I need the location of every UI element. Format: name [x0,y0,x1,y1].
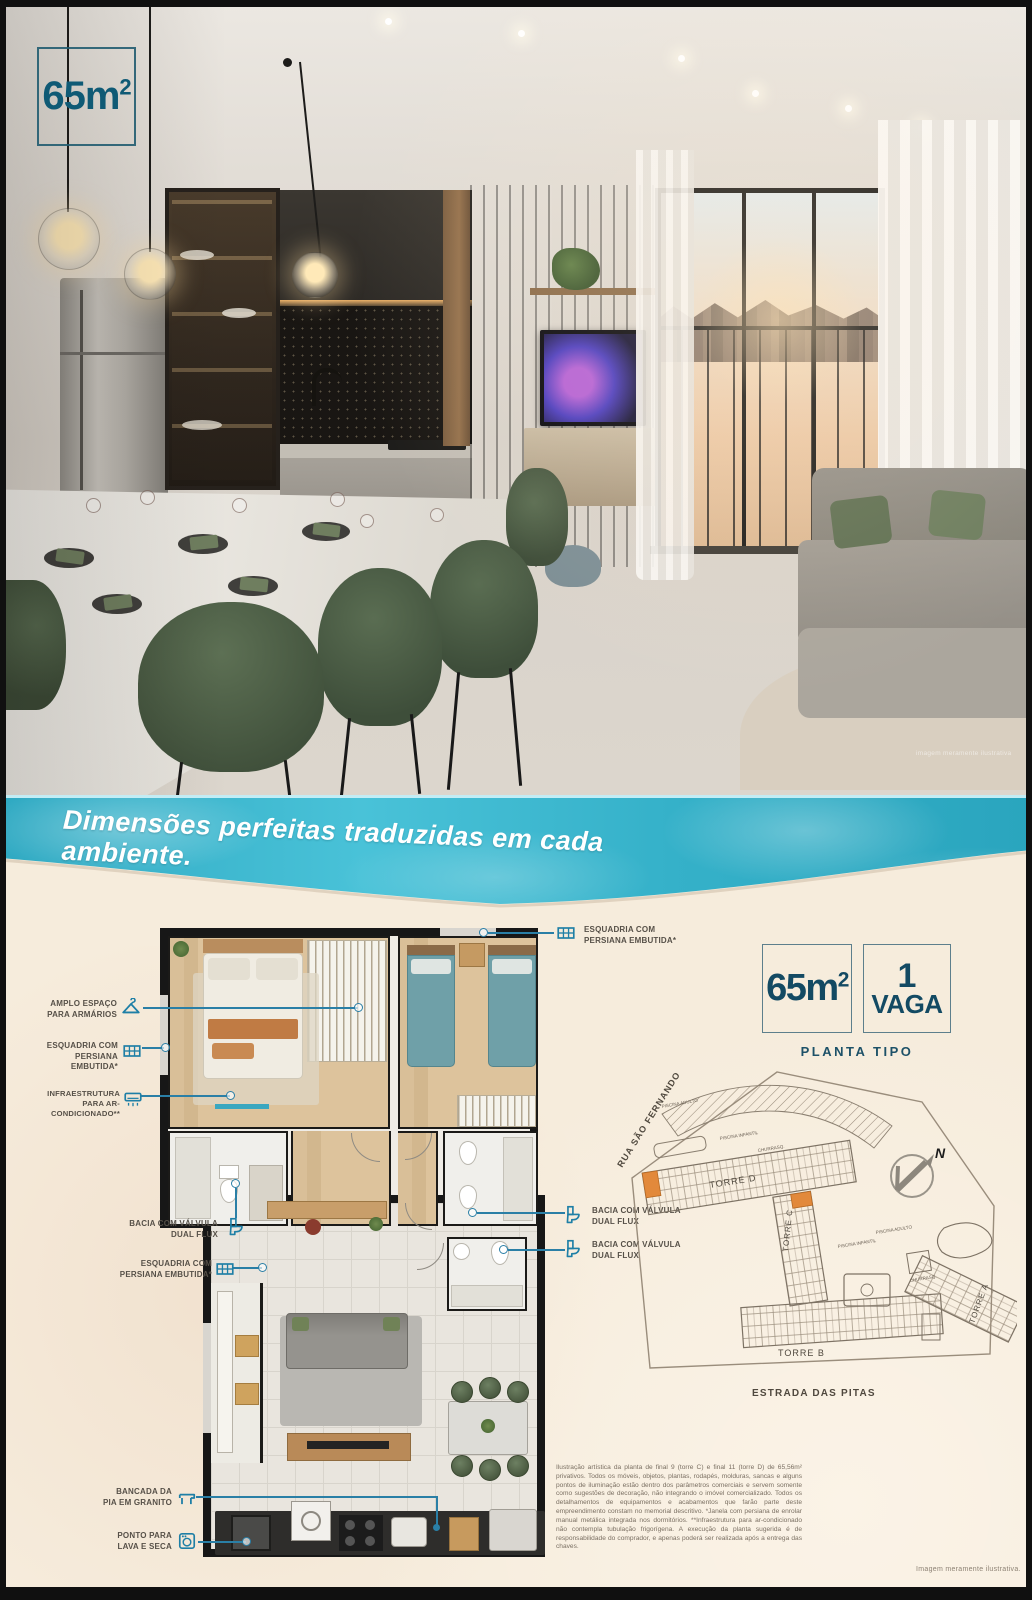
photo-dining-chair [430,540,538,678]
plan-balcony-seat [235,1383,259,1405]
siteplan-torre-b-label: TORRE B [778,1348,825,1358]
leader-dot [242,1537,251,1546]
plan-shower2 [503,1137,533,1221]
photo-green-pillow [928,489,987,540]
leader-dot [258,1263,267,1272]
window-icon [556,923,576,943]
photo-sun-glow [700,230,860,410]
leader-line [488,932,554,934]
ceiling-spotlight [678,55,685,62]
photo-dining-chair [0,580,66,710]
ceiling-spotlight [385,18,392,25]
plan-shower1 [175,1137,211,1219]
plan-burner [345,1536,355,1546]
leader-dot [433,1524,440,1531]
ac-icon [123,1089,143,1109]
photo-wine-glass [330,492,345,507]
plan-kitchen-cabinet [489,1509,537,1551]
area-badge-value: 65m2 [766,967,848,1010]
plan-burner [345,1520,355,1530]
plan-orange-cushion [212,1043,254,1059]
plan-table-plant [481,1419,495,1433]
plan-balcony-seat [235,1335,259,1357]
photo-cabinet-shelves [172,200,272,480]
photo-wood-column [443,190,470,446]
photo-fridge-divider [60,352,168,355]
plan-sofa-pillow [292,1317,309,1331]
plan-bed2-headboard [488,945,536,955]
plan-orange-throw [208,1019,298,1039]
site-plan: RUA SÃO FERNANDO TORRE D TORRE C TORRE B… [592,1056,1017,1408]
plan-kitchen-sink [391,1517,427,1547]
plan-plant [173,941,189,957]
toilet-icon [227,1216,247,1238]
compass-n-label: N [935,1145,946,1161]
pendant-mount [283,58,292,67]
siteplan-pool-right [937,1223,991,1258]
plan-pillow [208,958,250,980]
plan-dining-chair [451,1455,473,1477]
photo-sofa-chaise [798,628,1032,718]
plan-toilet1-tank [219,1165,239,1179]
annotation-closet: AMPLO ESPAÇOPARA ARMÁRIOS [27,999,117,1020]
plan-master-headboard [203,939,303,953]
area-badge: 65m2 [762,944,852,1033]
photo-dining-chair [138,602,324,772]
photo-chair-leg [340,718,351,796]
photo-fridge [60,278,168,523]
siteplan-pool-kids-top-label: PISCINA INFANTIL [719,1130,759,1141]
plan-dining-chair [507,1455,529,1477]
toilet-icon [564,1238,584,1260]
ceiling-spotlight [752,90,759,97]
photo-tv-screen [544,334,642,422]
legal-text: Ilustração artística da planta de final … [556,1464,802,1552]
leader-dot [231,1179,240,1188]
frame-left [0,0,6,1600]
annotation-toilet-left: BACIA COM VÁLVULADUAL FLUX [128,1219,218,1240]
siteplan-pool-adult-right-label: PISCINA ADULTO [875,1224,912,1235]
leader-line [143,1007,358,1009]
siteplan-pool-kids-right-label: PISCINA INFANTIL [837,1238,877,1249]
pendant-cord [149,0,151,252]
photo-chair-leg [284,760,291,796]
photo-dishes [180,250,214,260]
annotation-washer: PONTO PARALAVA E SECA [108,1531,172,1552]
plan-burner [365,1536,375,1546]
plan-pillow [256,958,298,980]
photo-hanging-plant [552,248,600,290]
photo-faucet [312,368,342,406]
plan-bedroom2-wardrobe [457,1095,536,1127]
plan-master-wardrobe [307,940,387,1062]
plan-bed2-headboard [407,945,455,955]
pendant-lamp [292,252,338,298]
hero-area-badge: 65m2 [37,47,136,146]
plan-ac-strip [215,1104,269,1109]
plan-tv [307,1441,389,1449]
plan-sink3 [453,1243,470,1260]
photo-napkin [239,577,268,593]
photo-green-pillow [829,495,892,550]
photo-chair-leg [410,714,421,794]
leader-line [198,1541,246,1543]
photo-dishes [182,420,222,430]
annotation-window-right: ESQUADRIA COMPERSIANA EMBUTIDA* [584,925,704,946]
photo-dishes [222,308,256,318]
leader-dot [499,1245,508,1254]
plan-desk [267,1201,387,1219]
ceiling-spotlight [518,30,525,37]
photo-fridge-handle [80,290,83,490]
frame-right [1026,0,1032,1600]
counter-icon [177,1488,197,1508]
leader-line [436,1496,438,1526]
photo-wine-glass [140,490,155,505]
window-icon [215,1259,235,1279]
leader-line [196,1496,437,1498]
pendant-lamp [124,248,176,300]
photo-dining-chair [318,568,442,726]
hanger-icon [121,998,141,1018]
plan-balcony-planter [217,1291,233,1453]
ceiling-spotlight [845,105,852,112]
plan-nightstand [459,943,485,967]
leader-dot [479,928,488,937]
plan-dining-chair [451,1381,473,1403]
hero-area-value: 65m2 [42,74,130,119]
plan-window-slit [203,1323,211,1433]
siteplan-court-circle [861,1284,873,1296]
photo-chair-leg [447,672,460,790]
wave-banner-topline [0,795,1032,798]
siteplan-pool-top [653,1136,707,1159]
photo-curtain-left [636,150,694,580]
plan-crate [449,1517,479,1551]
leader-line [508,1249,565,1251]
plan-washer-door [301,1511,321,1531]
parking-badge: 1 VAGA [863,944,951,1033]
siteplan-street-bottom: ESTRADA DAS PITAS [752,1388,876,1399]
photo-wine-glass [86,498,101,513]
annotation-window1: ESQUADRIA COMPERSIANA EMBUTIDA* [28,1041,118,1073]
plan-disclaimer: Imagem meramente ilustrativa. [916,1566,1021,1573]
plan-plant [369,1217,383,1231]
leader-line [140,1095,230,1097]
photo-wine-glass [232,498,247,513]
leader-line [477,1212,565,1214]
toilet-icon [564,1204,584,1226]
plan-burner [365,1520,375,1530]
plan-desk-chair [305,1219,321,1235]
siteplan-hatch-band [662,1085,892,1148]
plan-dining-chair [479,1459,501,1481]
plan-dining-chair [479,1377,501,1399]
leader-dot [226,1091,235,1100]
annotation-window2: ESQUADRIA COMPERSIANA EMBUTIDA* [118,1259,212,1280]
hero-photo: 65m2 imagem meramente ilustrativa [0,0,1032,796]
plan-pillow [492,959,532,974]
leader-dot [161,1043,170,1052]
pendant-lamp [38,208,100,270]
plan-pillow [411,959,451,974]
leader-dot [468,1208,477,1217]
compass-icon: N [891,1145,946,1197]
leader-dot [354,1003,363,1012]
leader-line [235,1188,237,1218]
photo-disclaimer: imagem meramente ilustrativa [916,750,1011,757]
window-icon [122,1041,142,1061]
photo-chair-leg [509,668,522,786]
annotation-countertop: BANCADA DAPIA EM GRANITO [96,1487,172,1508]
real-estate-poster: 65m2 imagem meramente ilustrativa Dimens… [0,0,1032,1600]
plan-sofa-pillow [383,1317,400,1331]
washer-icon [177,1531,197,1551]
parking-badge-number: 1 [898,960,917,992]
plan-shower3 [451,1285,523,1307]
frame-top [0,0,1032,7]
siteplan-torre-b [741,1294,943,1348]
photo-wine-glass [360,514,374,528]
plan-oven [231,1515,271,1551]
parking-badge-label: VAGA [871,992,942,1017]
frame-bottom [0,1587,1032,1600]
photo-wine-glass [430,508,444,522]
annotation-ac: INFRAESTRUTURAPARA AR-CONDICIONADO** [15,1089,120,1119]
plan-dining-chair [507,1381,529,1403]
